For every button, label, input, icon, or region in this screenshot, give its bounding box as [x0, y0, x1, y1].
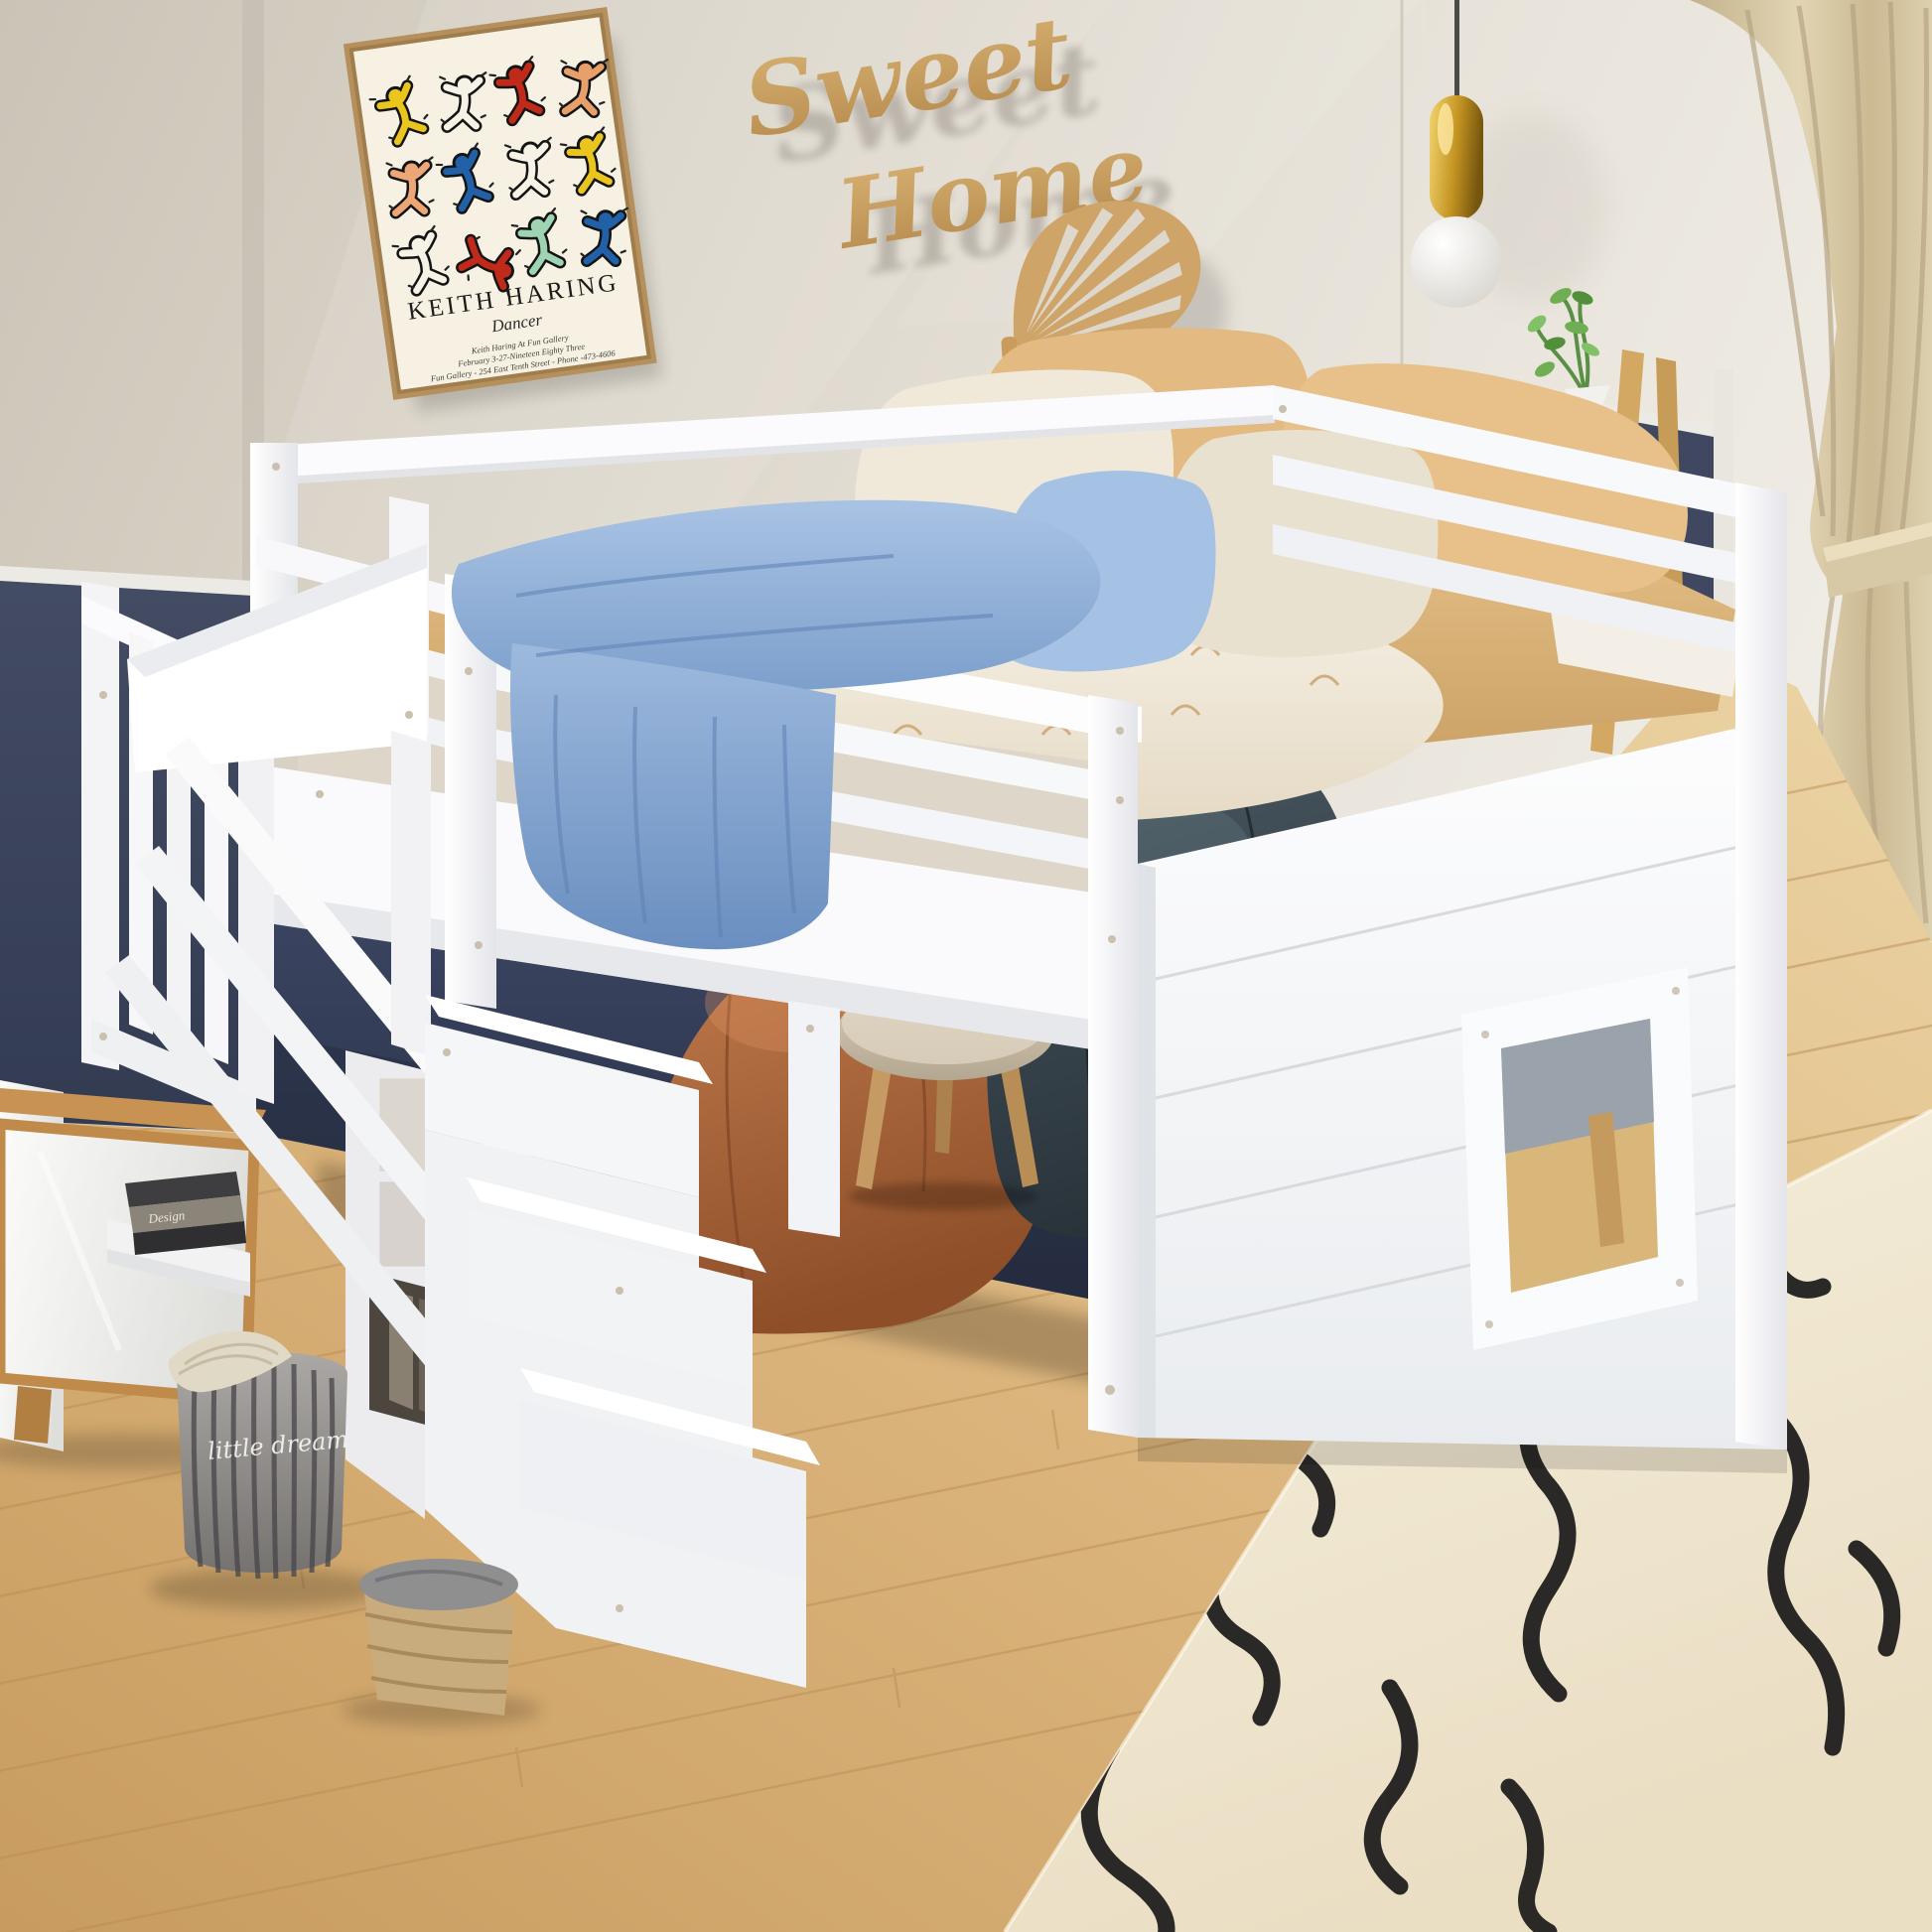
- book-stack: Design: [125, 1172, 246, 1255]
- panel-left-shade: [1138, 864, 1156, 1438]
- keith-haring-poster: KEITH HARING Dancer Keith Haring At Fun …: [344, 7, 657, 400]
- lamp-cord: [1454, 0, 1459, 99]
- scene-svg: KEITH HARING Dancer Keith Haring At Fun …: [0, 0, 1932, 1932]
- pouf-shadow: [149, 1569, 387, 1608]
- cabinet-leg: [14, 1386, 52, 1444]
- front-middle-leg: [788, 1001, 840, 1237]
- room-photo: KEITH HARING Dancer Keith Haring At Fun …: [0, 0, 1932, 1932]
- basket-cushion: [359, 1559, 518, 1610]
- playhouse-window: [1461, 967, 1698, 1350]
- lamp-white-sphere: [1411, 216, 1502, 308]
- lamp-gold-capsule: [1430, 95, 1483, 220]
- stool-shadow: [849, 1182, 1037, 1210]
- front-right-post: [1088, 695, 1138, 1438]
- landing-post-left: [81, 582, 119, 1070]
- lamp-highlight: [1438, 103, 1453, 155]
- stair-mid-post: [391, 731, 431, 1056]
- panel-right-post: [1735, 483, 1787, 1449]
